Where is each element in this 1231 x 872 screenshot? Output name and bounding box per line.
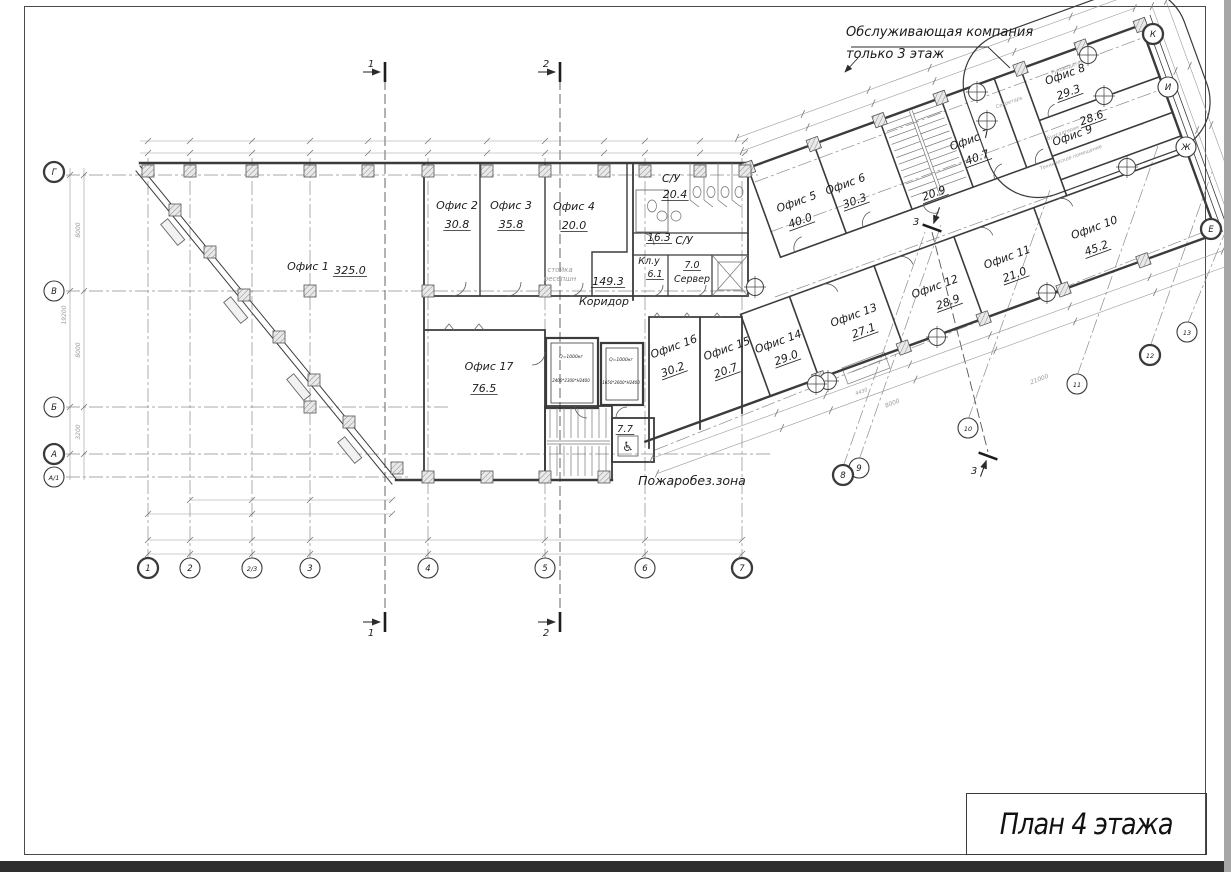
room-area: 45.2 — [1083, 238, 1110, 259]
grid-bubble: К — [1143, 24, 1163, 44]
column — [1136, 253, 1151, 268]
section-marker: 1 — [363, 612, 385, 639]
dim-tick — [1066, 302, 1074, 310]
label: 21000 — [1029, 373, 1049, 386]
room-name: Офис 16 — [649, 332, 699, 361]
room: Офис 1327.1 — [829, 301, 885, 347]
label: 8000 — [884, 398, 901, 410]
dim-tick — [1186, 62, 1194, 70]
dim-tick — [912, 376, 920, 384]
label: 1650*2600*H2400 — [602, 380, 640, 385]
column-marker-icon — [1093, 85, 1115, 107]
label: 149.3 — [592, 275, 624, 288]
annotation-line2: только 3 этаж — [846, 44, 1033, 66]
column — [639, 165, 651, 177]
wheelchair-icon: ♿ — [618, 436, 638, 456]
column — [598, 471, 610, 483]
dim-tick — [1207, 121, 1215, 129]
grid-wing-number-axes — [843, 146, 1224, 467]
room-area: 30.2 — [659, 359, 686, 380]
room-area: 28.9 — [934, 292, 961, 313]
label: 2400*2300*H2400 — [552, 378, 590, 383]
label: Q=1000кг — [559, 354, 583, 360]
dim-tick — [1151, 288, 1159, 296]
dim-tick — [986, 332, 994, 340]
column — [273, 331, 285, 343]
dim-tick — [1131, 4, 1139, 12]
grid-bubble: 4 — [418, 558, 438, 578]
grid-bubble-label: 10 — [964, 425, 972, 433]
column — [343, 416, 355, 428]
room: Офис 630.3 — [824, 171, 874, 215]
room: Офис 1121.0 — [982, 243, 1039, 290]
column — [539, 471, 551, 483]
room: Офис 1776.5 — [465, 360, 514, 395]
grid-bubble-label: 13 — [1183, 329, 1191, 337]
room-name: Офис 2 — [436, 199, 478, 212]
column — [694, 165, 706, 177]
section-marker: 2 — [538, 612, 560, 639]
label: 8000 — [75, 222, 82, 237]
grid-bubble: В — [44, 281, 64, 301]
dim-tick — [1071, 318, 1079, 326]
grid-bubble-label: 8 — [840, 471, 846, 481]
column — [481, 471, 493, 483]
right-edge-strip — [1224, 0, 1231, 872]
grid-bubble: Е — [1201, 219, 1221, 239]
room-area: 27.1 — [850, 320, 877, 341]
dim-tick — [931, 77, 939, 85]
label: Коридор — [579, 295, 629, 308]
column-marker-icon — [966, 81, 988, 103]
column — [362, 165, 374, 177]
grid-bubble: 13 — [1177, 322, 1197, 342]
column-marker-icon — [1036, 282, 1058, 304]
section-marker: 2 — [538, 59, 560, 82]
label: 16.3 — [647, 232, 670, 244]
column — [169, 204, 181, 216]
column-marker-icon — [926, 326, 948, 348]
room-area: 40.7 — [963, 147, 990, 168]
column — [238, 289, 250, 301]
column — [422, 165, 434, 177]
grid-bubble-label: 9 — [856, 464, 861, 474]
grid-bubble: 2/3 — [242, 558, 262, 578]
grid-bubble: 5 — [535, 558, 555, 578]
drawing-sheet: ♿ Офис 540.0Офис 630.3Офис 740.7О — [0, 0, 1231, 872]
label: 20.4 — [663, 188, 688, 201]
section-marker-label: 1 — [368, 628, 374, 639]
grid-bubble: 1 — [138, 558, 158, 578]
grid-bubble-label: И — [1165, 83, 1172, 93]
grid-bubble-label: 3 — [307, 564, 312, 574]
label: 7.0 — [684, 260, 699, 271]
column — [598, 165, 610, 177]
column — [391, 462, 403, 474]
dim-tick — [1172, 67, 1180, 75]
grid-bubble-label: Е — [1208, 225, 1214, 235]
label: 19200 — [61, 305, 68, 324]
grid-bubble: 3 — [300, 558, 320, 578]
annotation-line1: Обслуживающая компания — [846, 22, 1033, 44]
column — [304, 165, 316, 177]
column — [422, 471, 434, 483]
dim-tick — [778, 424, 786, 432]
grid-bubble-label: Ж — [1180, 143, 1191, 153]
label: Секретарь — [995, 95, 1023, 110]
label: ресепшн — [543, 275, 577, 283]
room-area: 21.0 — [1001, 264, 1028, 285]
section-marker-label: 3 — [971, 466, 977, 477]
section-marker-label: 1 — [368, 59, 374, 70]
bottom-strip — [0, 861, 1231, 872]
facade-fins — [161, 219, 362, 464]
sheet-title: План 4 этажа — [1000, 807, 1173, 841]
grid-bubble: 8 — [833, 465, 853, 485]
column — [933, 90, 948, 105]
column — [422, 285, 434, 297]
grid-bubble: 11 — [1067, 374, 1087, 394]
label: С/У — [662, 172, 681, 185]
grid-bubble: 2 — [180, 558, 200, 578]
label: Кл.у — [638, 256, 660, 267]
dim-tick — [1162, 0, 1170, 5]
column — [1056, 282, 1071, 297]
label: 6.1 — [647, 269, 662, 280]
wing-door-arcs — [777, 104, 1089, 301]
column — [308, 374, 320, 386]
dim-tick — [773, 409, 781, 417]
room-area: 29.3 — [1055, 82, 1082, 103]
column — [539, 285, 551, 297]
grid-bubble-label: 5 — [542, 564, 547, 574]
grid-bubble-label: 7 — [739, 564, 745, 574]
room-area: 20.0 — [562, 219, 587, 232]
grid-bubble: 10 — [958, 418, 978, 438]
dim-tick — [822, 391, 830, 399]
column — [739, 165, 751, 177]
dim-tick — [1148, 2, 1156, 10]
room-area: 35.8 — [499, 218, 524, 231]
dim-tick — [870, 99, 878, 107]
section-marker: 3 — [971, 453, 998, 481]
room-name: Офис 4 — [553, 200, 595, 213]
dim-tick — [799, 110, 807, 118]
annotation-note: Обслуживающая компания только 3 этаж — [846, 22, 1033, 66]
section-marker-label: 3 — [913, 217, 919, 228]
label: Q=1000кг — [609, 357, 633, 363]
room-area: 29.0 — [773, 348, 800, 369]
grid-bubble-label: К — [1150, 30, 1157, 40]
section-marker: 1 — [363, 59, 385, 82]
room-area: 76.5 — [472, 382, 497, 395]
grid-bubble: Б — [44, 397, 64, 417]
dim-tick — [804, 123, 812, 131]
grid-bubble: А/1 — [44, 467, 64, 487]
grid-bubble-label: А/1 — [48, 474, 60, 482]
column — [976, 311, 991, 326]
floor-plan-svg: ♿ Офис 540.0Офис 630.3Офис 740.7О — [0, 0, 1231, 872]
grid-bubble-label: 2/3 — [247, 565, 257, 573]
grid-bubble-label: 1 — [145, 564, 150, 574]
room: Офис 1325.0 — [287, 260, 367, 277]
room: Офис 1228.9 — [910, 272, 967, 319]
vent-triangles — [444, 313, 721, 330]
room-name: Офис 15 — [702, 334, 752, 363]
column — [872, 112, 887, 127]
dim-tick — [1072, 26, 1080, 34]
room-name: Офис 17 — [465, 360, 514, 373]
room: Офис 1630.2 — [649, 332, 699, 380]
grid-bubble: 12 — [1140, 345, 1160, 365]
label: С/У — [675, 235, 693, 247]
dim-tick — [827, 406, 835, 414]
grid-bubble: А — [44, 444, 64, 464]
room: Офис 230.8 — [436, 199, 478, 231]
label: 3200 — [75, 424, 82, 439]
column — [204, 246, 216, 258]
grid-bubble-label: Б — [51, 403, 57, 413]
grid-bubble: 7 — [732, 558, 752, 578]
dimension-lines — [67, 138, 748, 557]
label: 8000 — [75, 342, 82, 357]
room: Офис 1045.2 — [1069, 213, 1126, 261]
room-area: 30.3 — [841, 191, 868, 212]
grid-bubble-label: 11 — [1073, 381, 1081, 389]
column — [142, 165, 154, 177]
label: стойка — [547, 266, 572, 274]
column — [481, 165, 493, 177]
column — [304, 285, 316, 297]
dim-tick — [1146, 273, 1154, 281]
room-name: Офис 5 — [775, 189, 819, 216]
room-area: 30.8 — [445, 218, 470, 231]
grid-bubble-label: 4 — [425, 564, 430, 574]
grid-bubble-label: А — [50, 450, 57, 460]
grid-bubble: Г — [44, 162, 64, 182]
room-area: 28.6 — [1078, 108, 1105, 129]
svg-text:♿: ♿ — [622, 440, 634, 455]
grid-bubble-label: 2 — [187, 564, 192, 574]
column — [246, 165, 258, 177]
room-area: 325.0 — [334, 264, 366, 277]
dim-tick — [1067, 13, 1075, 21]
room: Офис 335.8 — [490, 199, 532, 231]
room-area: 40.0 — [786, 211, 813, 232]
column — [806, 136, 821, 151]
grid-bubble-label: 12 — [1146, 352, 1154, 360]
column — [539, 165, 551, 177]
section-marker-label: 2 — [543, 628, 549, 639]
room: Офис 540.0 — [775, 189, 825, 233]
room: Офис 1520.7 — [702, 334, 752, 381]
room-name: Офис 3 — [490, 199, 532, 212]
room-area: 20.7 — [712, 360, 739, 381]
grid-bubble: И — [1158, 77, 1178, 97]
grid-bubble: Ж — [1176, 137, 1196, 157]
room-name: Офис 10 — [1069, 213, 1119, 242]
dim-tick — [906, 361, 914, 369]
title-block: План 4 этажа — [966, 793, 1207, 855]
grid-bubble: 6 — [635, 558, 655, 578]
dim-tick — [865, 86, 873, 94]
column — [184, 165, 196, 177]
column-marker-icon — [1116, 156, 1138, 178]
column — [304, 401, 316, 413]
room-name: Офис 1 — [287, 260, 329, 273]
label: 7.7 — [617, 424, 634, 435]
label: Пожаробез.зона — [638, 473, 746, 488]
room: Офис 1429.0 — [753, 327, 809, 373]
room: Офис 420.0 — [553, 200, 595, 232]
label: 4430 — [855, 387, 869, 397]
section-marker: 3 — [913, 204, 949, 232]
section-marker-label: 2 — [543, 59, 549, 70]
block-stairs — [547, 408, 610, 476]
grid-bubble-label: 6 — [642, 564, 648, 574]
grid-bubble-label: В — [51, 287, 57, 297]
grid-wing-letter-axes — [655, 34, 1211, 450]
label: Сервер — [674, 274, 710, 285]
dim-tick — [733, 134, 741, 142]
